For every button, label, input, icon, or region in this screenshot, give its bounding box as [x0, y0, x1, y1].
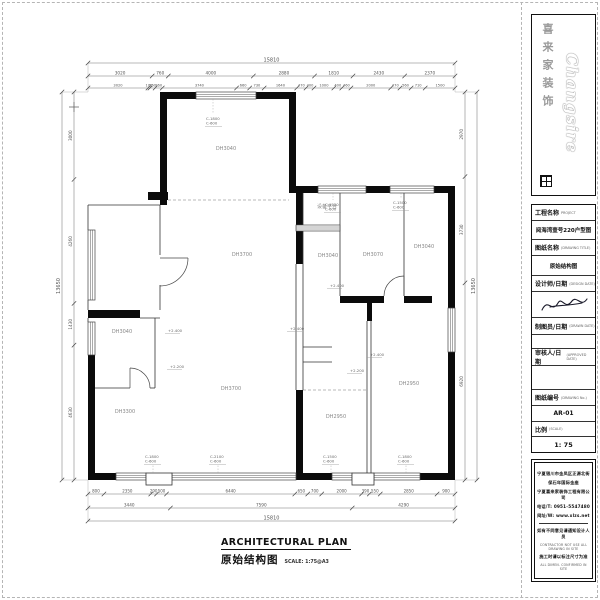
height-mark: +2.400 — [290, 326, 305, 331]
dim-label: 550 — [371, 488, 379, 493]
dim-label: 360 — [155, 83, 163, 87]
company-address-1: 宁夏银川市金凤区正源北街 — [536, 471, 591, 477]
project-label-row: 工程名称 PROJECT — [532, 205, 595, 221]
dim-label: 400 — [334, 83, 342, 87]
door-arc — [130, 368, 150, 388]
window — [332, 473, 352, 480]
wall — [448, 352, 455, 480]
number-label-row: 图纸编号 (DRAWING No.) — [532, 390, 595, 406]
dim-label: 13650 — [56, 278, 62, 294]
height-mark: +2.400 — [330, 283, 345, 288]
dim-label: 2370 — [424, 70, 435, 75]
dim-label: 6920 — [459, 376, 464, 387]
brand-english: Changsire — [563, 53, 582, 153]
drawing-number: AR-01 — [532, 406, 595, 422]
dim-label: 390 — [362, 488, 370, 493]
drafter-label: 制图员/日期 — [535, 322, 567, 331]
room-label: DH3700 — [232, 252, 252, 258]
company-box-inner: 宁夏银川市金凤区正源北街 保石年国际金座 宁夏喜来家装饰工程有限公司 电话/T:… — [534, 462, 593, 579]
height-mark: +2.200 — [170, 364, 185, 369]
dim-label: 15810 — [264, 515, 280, 521]
window-tag: C-600 — [206, 121, 218, 126]
dim-label: 6440 — [226, 488, 237, 493]
dim-label: 3020 — [113, 83, 123, 87]
project-label: 工程名称 — [535, 208, 559, 217]
company-phone: 电话/T: 0951-5547480 — [536, 504, 591, 510]
window — [374, 473, 420, 480]
window — [318, 186, 366, 193]
wall — [366, 186, 392, 193]
approver-label: 审核人/日期 — [535, 349, 565, 366]
dim-label: 2000 — [366, 83, 376, 87]
dim-label: 3730 — [459, 224, 464, 235]
wall — [160, 92, 167, 205]
dim-label: 7590 — [256, 502, 267, 507]
room-label: DH3040 — [318, 253, 338, 259]
scale-label: 比例 — [535, 425, 547, 434]
wall — [404, 296, 432, 303]
room-label: DH2950 — [326, 414, 346, 420]
room-label: DH3070 — [363, 252, 383, 258]
dim-label: 470 — [298, 83, 306, 87]
bay-window — [146, 473, 172, 485]
wall — [367, 303, 372, 321]
wall — [88, 473, 116, 480]
company-address-2: 保石年国际金座 — [536, 480, 591, 486]
approver-blank-row — [532, 366, 595, 390]
designer-signature-row — [532, 292, 595, 318]
dim-label: 4000 — [205, 70, 216, 75]
room-label: DH3300 — [115, 409, 135, 415]
wall — [448, 186, 455, 308]
drafter-label-row: 制图员/日期 (DRAWN DATE) — [532, 318, 595, 335]
seal-stamp-icon — [540, 175, 552, 187]
dim-label: 700 — [311, 488, 319, 493]
dim-label: 3740 — [195, 83, 205, 87]
company-divider — [539, 523, 588, 524]
dim-label: 3440 — [124, 502, 135, 507]
dim-label: 2350 — [122, 488, 133, 493]
dim-label: 3000 — [68, 130, 73, 141]
title-english: ARCHITECTURAL PLAN — [221, 537, 351, 550]
window — [296, 225, 340, 231]
window-tag: C-600 — [398, 459, 410, 464]
note-1: 如有不同意见请通知设计人员 — [536, 528, 591, 540]
project-label-en: PROJECT — [561, 211, 576, 215]
door-arc — [384, 276, 404, 296]
scale-note: SCALE: 1:75@A3 — [285, 560, 329, 565]
dim-label: 500 — [158, 488, 166, 493]
room-label: DH3040 — [112, 329, 132, 335]
wall — [289, 92, 296, 193]
window — [172, 473, 296, 480]
logo-box: 喜来家装饰 Changsire — [531, 14, 596, 196]
dim-label: 2000 — [337, 488, 348, 493]
wall — [88, 310, 140, 318]
floor-plan: 1581030207604000288018102430237030201002… — [0, 0, 600, 600]
wall — [148, 192, 168, 200]
company-name: 宁夏喜来家装饰工程有限公司 — [536, 489, 591, 501]
dim-label: 1500 — [436, 83, 446, 87]
dim-label: 4630 — [68, 407, 73, 418]
window-tag: C-600 — [393, 205, 405, 210]
dim-label: 1640 — [276, 83, 286, 87]
title-block: 工程名称 PROJECT 阅海湾壹号220户型图 图纸名称 (DRAWING T… — [531, 204, 596, 453]
approver-label-en: (APPROVED DATE) — [567, 353, 595, 361]
title-chinese: 原始结构图 — [221, 552, 279, 567]
dim-label: 400 — [307, 83, 315, 87]
window — [88, 322, 95, 355]
designer-label: 设计师/日期 — [535, 279, 567, 288]
window-tag: C-600 — [323, 459, 335, 464]
dim-label: 1000 — [319, 83, 329, 87]
dim-label: 4290 — [398, 502, 409, 507]
window — [196, 92, 256, 99]
brand-chinese: 喜来家装饰 — [539, 23, 555, 113]
room-label: DH2950 — [399, 381, 419, 387]
scale-label-row: 比例 (SCALE) — [532, 422, 595, 437]
window-tag: C-600 — [145, 459, 157, 464]
number-label: 图纸编号 — [535, 393, 559, 402]
dim-label: 730 — [253, 83, 261, 87]
window — [448, 308, 455, 352]
height-mark: +2.400 — [168, 328, 183, 333]
dim-label: 900 — [442, 488, 450, 493]
window-tag: C-600 — [325, 207, 337, 212]
scale-value: 1: 75 — [532, 437, 595, 452]
note-2: 施工时请以标注尺寸为准 — [536, 554, 591, 560]
dim-label: 800 — [92, 488, 100, 493]
dim-label: 560 — [402, 83, 410, 87]
dim-label: 2970 — [459, 129, 464, 140]
room-label: DH3040 — [216, 146, 236, 152]
dim-label: 1430 — [68, 319, 73, 330]
scale-label-en: (SCALE) — [549, 427, 563, 431]
room-label: DH3040 — [414, 244, 434, 250]
dim-label: 15810 — [264, 57, 280, 63]
window — [390, 186, 434, 193]
window — [88, 230, 95, 300]
drawing-label: 图纸名称 — [535, 243, 559, 252]
drawing-label-row: 图纸名称 (DRAWING TITLE) — [532, 240, 595, 256]
dim-label: 2880 — [279, 70, 290, 75]
dim-label: 2430 — [373, 70, 384, 75]
designer-label-en: (DESIGN DATE) — [569, 282, 595, 286]
drawing-title-footer: ARCHITECTURAL PLAN 原始结构图 SCALE: 1:75@A3 — [221, 537, 351, 567]
drafter-label-en: (DRAWN DATE) — [569, 324, 594, 328]
bay-window — [352, 473, 374, 485]
company-website: 网址/W: www.xlzs.net — [536, 513, 591, 519]
height-mark: +2.400 — [370, 352, 385, 357]
drawing-label-en: (DRAWING TITLE) — [561, 246, 590, 250]
title-panel: 喜来家装饰 Changsire 工程名称 PROJECT 阅海湾壹号220户型图… — [527, 6, 600, 594]
project-value: 阅海湾壹号220户型图 — [532, 221, 595, 240]
dim-label: 710 — [415, 83, 423, 87]
drafter-blank-row — [532, 335, 595, 349]
dim-label: 470 — [392, 83, 400, 87]
dim-label: 460 — [343, 83, 351, 87]
dim-label: 660 — [240, 83, 248, 87]
window-tag: C-600 — [210, 459, 222, 464]
company-box: 宁夏银川市金凤区正源北街 保石年国际金座 宁夏喜来家装饰工程有限公司 电话/T:… — [531, 459, 596, 582]
dim-label: 650 — [297, 488, 305, 493]
dim-label: 13650 — [471, 278, 477, 294]
note-1-en: CONTRACTOR NOT USE ALL DRAWING IN SITE — [536, 543, 591, 551]
room-label: DH3700 — [221, 386, 241, 392]
dim-label: 3020 — [115, 70, 126, 75]
dim-label: 4260 — [68, 236, 73, 247]
height-mark: +2.200 — [350, 368, 365, 373]
dim-label: 760 — [156, 70, 164, 75]
number-label-en: (DRAWING No.) — [561, 396, 587, 400]
dim-label: 1810 — [328, 70, 339, 75]
approver-label-row: 审核人/日期 (APPROVED DATE) — [532, 349, 595, 366]
window — [116, 473, 146, 480]
designer-signature — [538, 294, 590, 316]
drawing-sheet: 1581030207604000288018102430237030201002… — [0, 0, 600, 600]
drawing-value: 原始结构图 — [532, 256, 595, 276]
wall — [88, 355, 95, 480]
designer-label-row: 设计师/日期 (DESIGN DATE) — [532, 276, 595, 292]
wall — [296, 390, 303, 480]
dim-label: 2850 — [404, 488, 415, 493]
note-2-en: ALL DIMEN. CONFIRMED IN SITE — [536, 563, 591, 571]
wall — [448, 473, 455, 480]
wall — [340, 296, 384, 303]
door-arc — [160, 258, 188, 286]
